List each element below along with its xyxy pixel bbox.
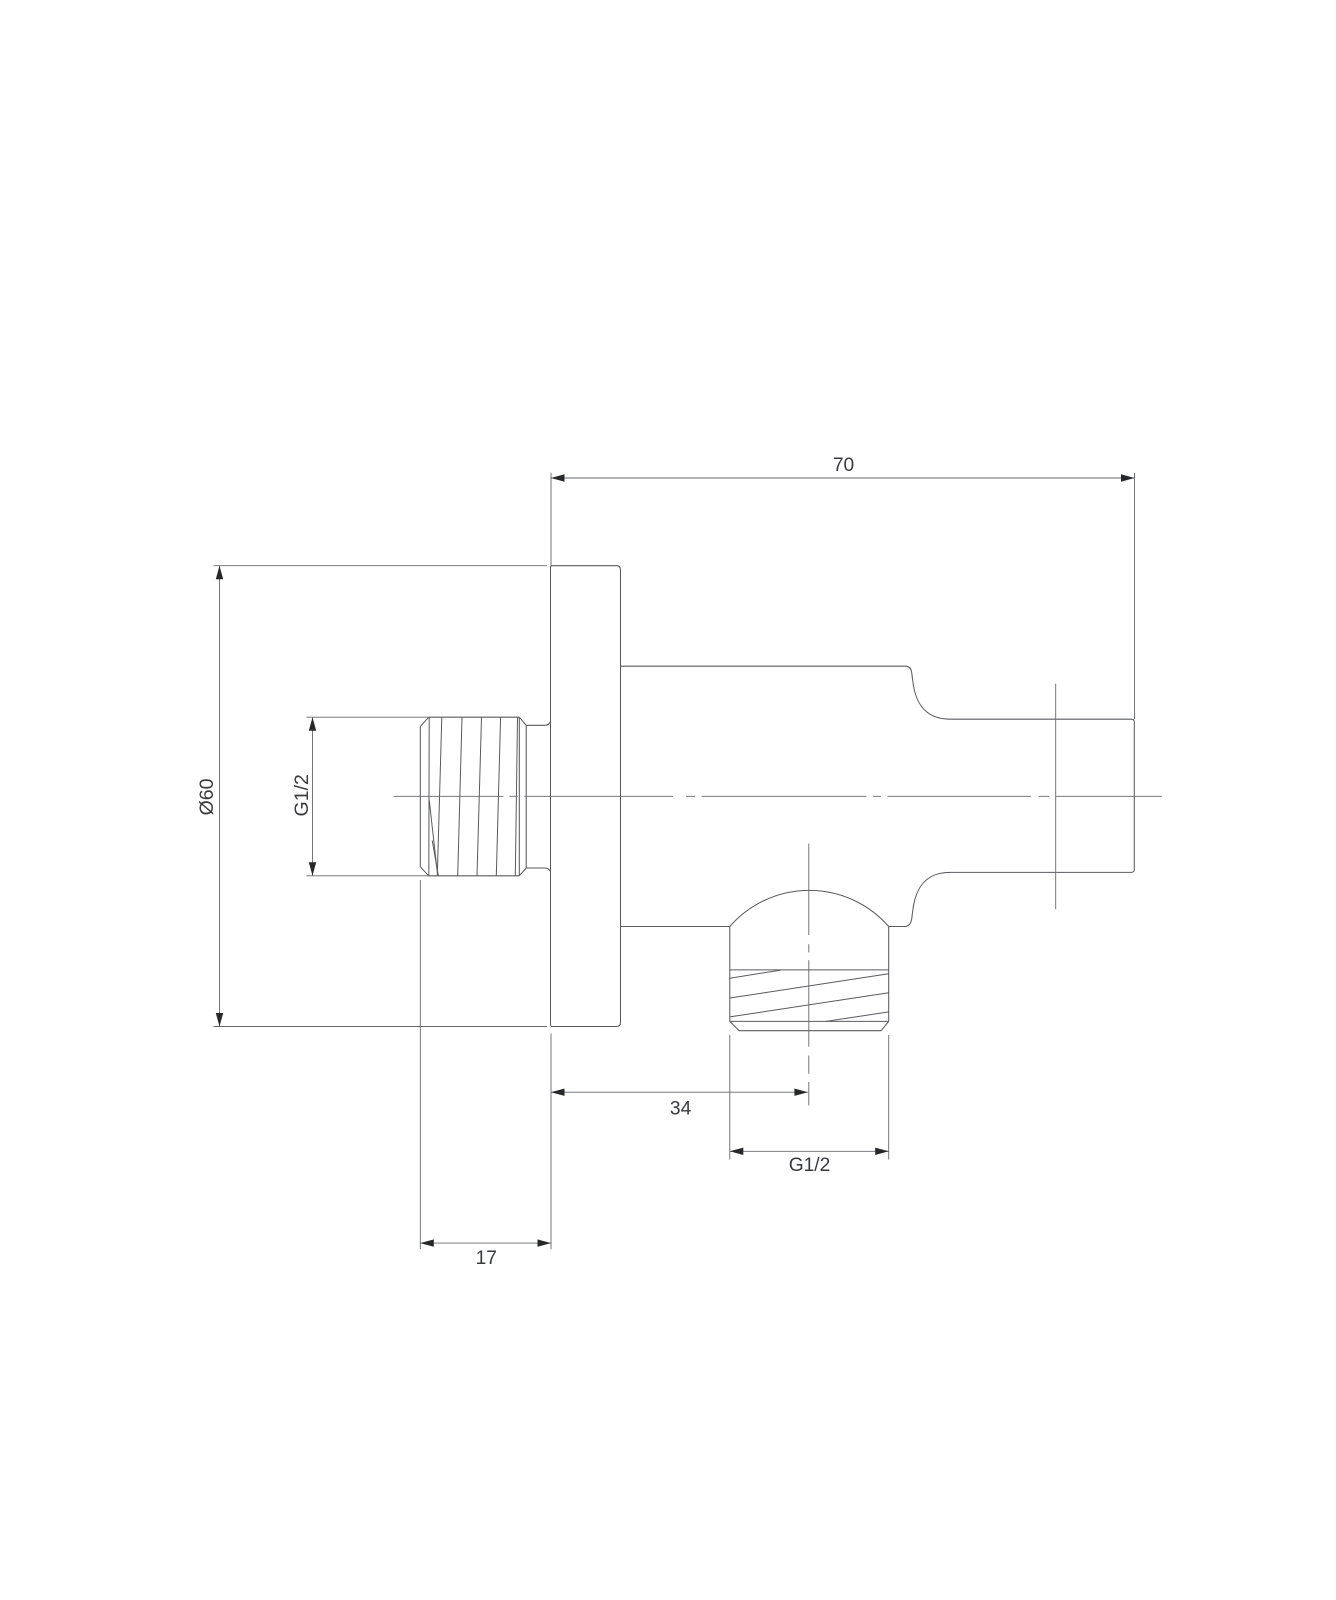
svg-text:G1/2: G1/2 <box>789 1155 831 1176</box>
svg-text:17: 17 <box>476 1248 497 1269</box>
svg-text:G1/2: G1/2 <box>291 774 313 816</box>
svg-text:70: 70 <box>833 455 854 476</box>
svg-text:34: 34 <box>670 1098 692 1119</box>
svg-text:Ø60: Ø60 <box>196 778 218 815</box>
